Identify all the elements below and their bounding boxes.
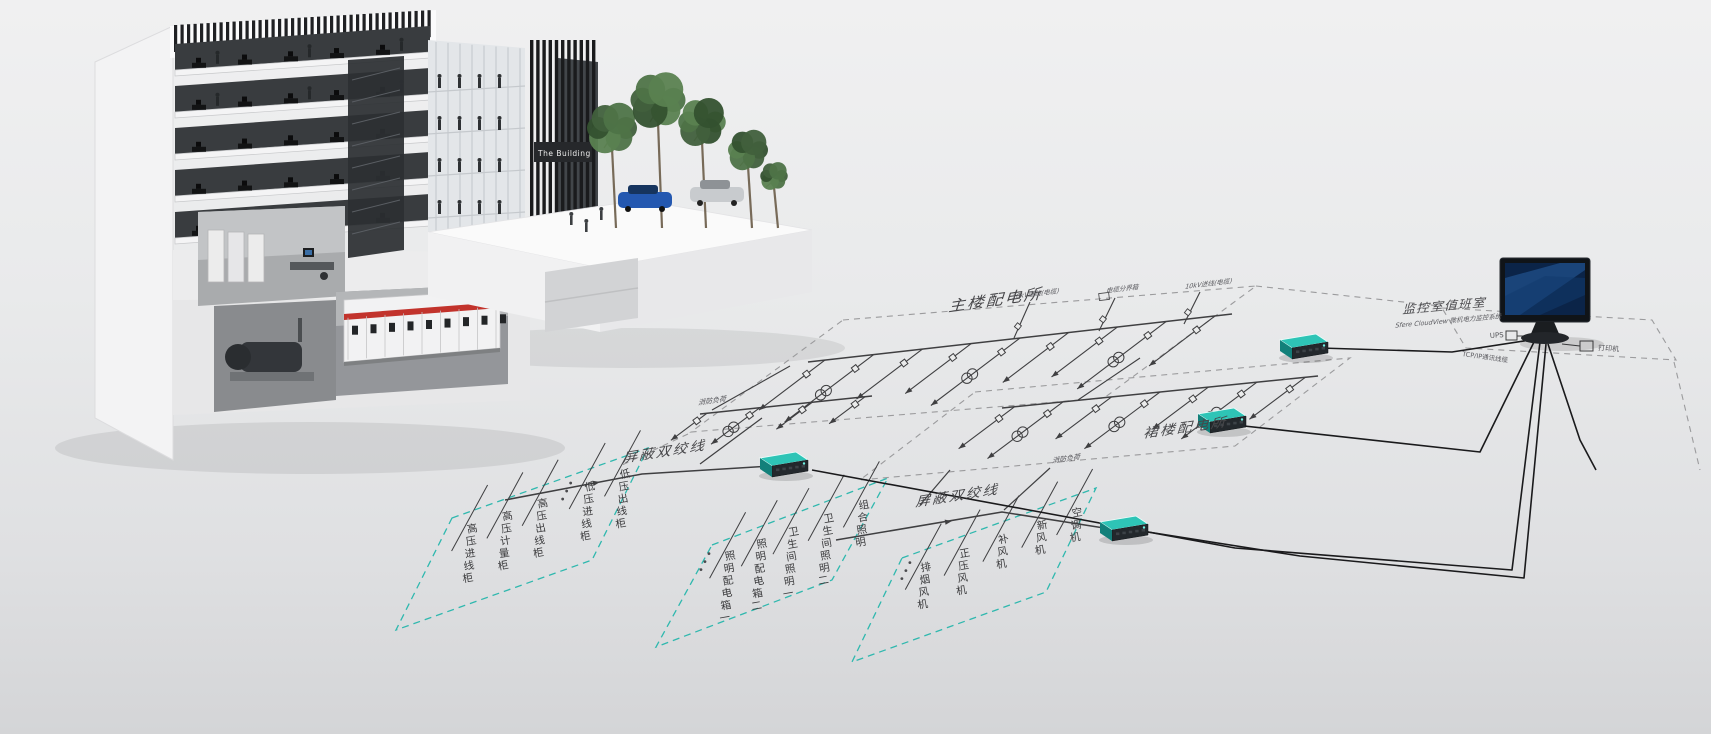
basement-control-room [198, 206, 345, 306]
cabinet [228, 232, 244, 282]
feeder-label: 高压出线柜 [524, 496, 558, 560]
gateway-device-4 [1099, 516, 1153, 545]
pump-plinth [230, 372, 314, 381]
feeder-label: 照明配电箱二 [740, 537, 779, 613]
bus2-label: 屏蔽双绞线 [914, 481, 1003, 510]
fire-load-note-podium: 消防负荷 [1052, 452, 1082, 465]
wheel-icon [731, 200, 737, 206]
office-chair [320, 272, 328, 280]
podium-substation-title: 裙楼配电所 [1142, 414, 1231, 442]
incoming-label-2: 电缆分界箱 [1105, 282, 1140, 295]
gateway-device-2 [1279, 334, 1333, 363]
building-left-wall [95, 26, 173, 460]
blue-car-cabin [628, 185, 658, 194]
ups-label: UPS [1490, 331, 1505, 340]
silver-car-cabin [700, 180, 730, 189]
cabinet [248, 234, 264, 282]
feeder-label: 正压风机 [949, 547, 977, 598]
feeder-label: 新风机 [1030, 518, 1054, 557]
building-sign: The Building [537, 149, 591, 158]
desk [290, 262, 334, 270]
feeder-label: 补风机 [991, 532, 1015, 571]
stair-core [348, 56, 404, 258]
monitoring-computer [1500, 258, 1604, 351]
workstation-screen [305, 250, 312, 255]
feeder-label: 低压进线柜 [571, 479, 605, 543]
cabinet [208, 230, 224, 282]
scene-stage: The Building [0, 0, 1711, 734]
fire-load-note-main: 消防负荷 [698, 394, 728, 407]
incoming-label-3: 10kV进线(电缆) [1184, 276, 1234, 291]
wheel-icon [659, 206, 665, 212]
feeder-label: 卫生间照明二 [807, 512, 846, 588]
wheel-icon [625, 206, 631, 212]
main-substation-title: 主楼配电所 [947, 285, 1047, 316]
tcpip-cable-label: TCP/IP通讯线缆 [1461, 349, 1509, 365]
feeder-label: 排烟风机 [910, 560, 939, 612]
feeder-label: 卫生间照明一 [772, 525, 811, 601]
feeder-label: 高压计量柜 [489, 509, 523, 573]
monitor-base [1521, 332, 1569, 344]
blue-car [618, 192, 672, 208]
gateway-device-1 [759, 452, 813, 481]
pump-motor [225, 344, 251, 370]
wheel-icon [697, 200, 703, 206]
feeder-label: 高压进线柜 [453, 521, 487, 585]
building-illustration: The Building [55, 10, 845, 474]
scene-canvas: The Building [0, 0, 1711, 734]
printer-label: 打印机 [1598, 343, 1620, 353]
silver-car [690, 187, 744, 202]
basement-pump-room [214, 300, 336, 412]
